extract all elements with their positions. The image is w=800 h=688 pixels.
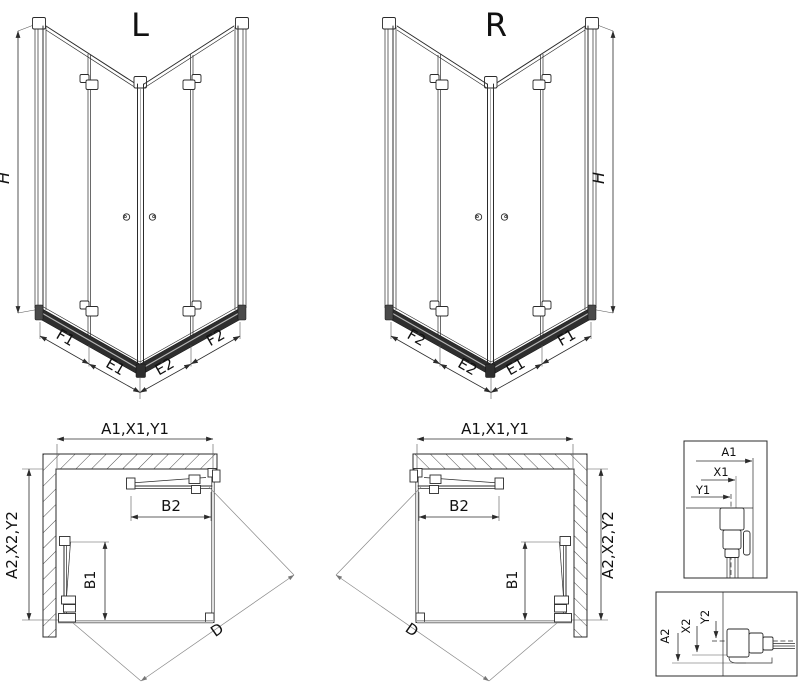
plan-width-label-right: A1,X1,Y1 [461,420,529,438]
height-label-left: H [0,172,13,184]
plan-view-right: A1,X1,Y1 A2,X2,Y2 B2 B1 D [336,420,617,681]
plan-b1-label-left: B1 [83,571,99,590]
iso-view-left: L H F1 E1 E2 F2 [0,6,249,399]
plan-linework-right [336,439,608,681]
plan-width-label-left: A1,X1,Y1 [101,420,169,438]
height-label-right: H [589,172,608,184]
variant-label-right: R [485,6,507,44]
plan-b2-label-right: B2 [449,497,469,515]
iso-view-right: R H F2 E2 E1 F1 [383,6,614,399]
detail-a1-label: A1 [721,445,736,459]
variant-label-left: L [131,6,149,44]
detail-a2-label: A2 [658,628,672,643]
detail-bottom-frame [656,592,797,676]
detail-x2-label: X2 [679,618,693,633]
detail-x1-label: X1 [713,465,728,479]
detail-y2-label: Y2 [698,610,712,625]
plan-b2-label-left: B2 [161,497,181,515]
detail-box-bottom: A2 X2 Y2 [656,592,797,676]
wall-profile-section-bottom [727,629,795,663]
detail-y1-label: Y1 [695,483,710,497]
technical-drawing-page: L H F1 E1 E2 F2 R H F2 E2 E1 F1 A1,X1,Y1… [0,0,800,688]
shower-enclosure-diagram: L H F1 E1 E2 F2 R H F2 E2 E1 F1 A1,X1,Y1… [0,0,800,688]
detail-box-top: A1 X1 Y1 [684,441,767,578]
plan-depth-label-right: A2,X2,Y2 [599,511,617,579]
plan-b1-label-right: B1 [505,571,521,590]
plan-view-left: A1,X1,Y1 A2,X2,Y2 B2 B1 D [3,420,294,681]
wall-profile-section-top [720,508,750,578]
plan-depth-label-left: A2,X2,Y2 [3,511,21,579]
plan-linework-left [22,439,294,681]
